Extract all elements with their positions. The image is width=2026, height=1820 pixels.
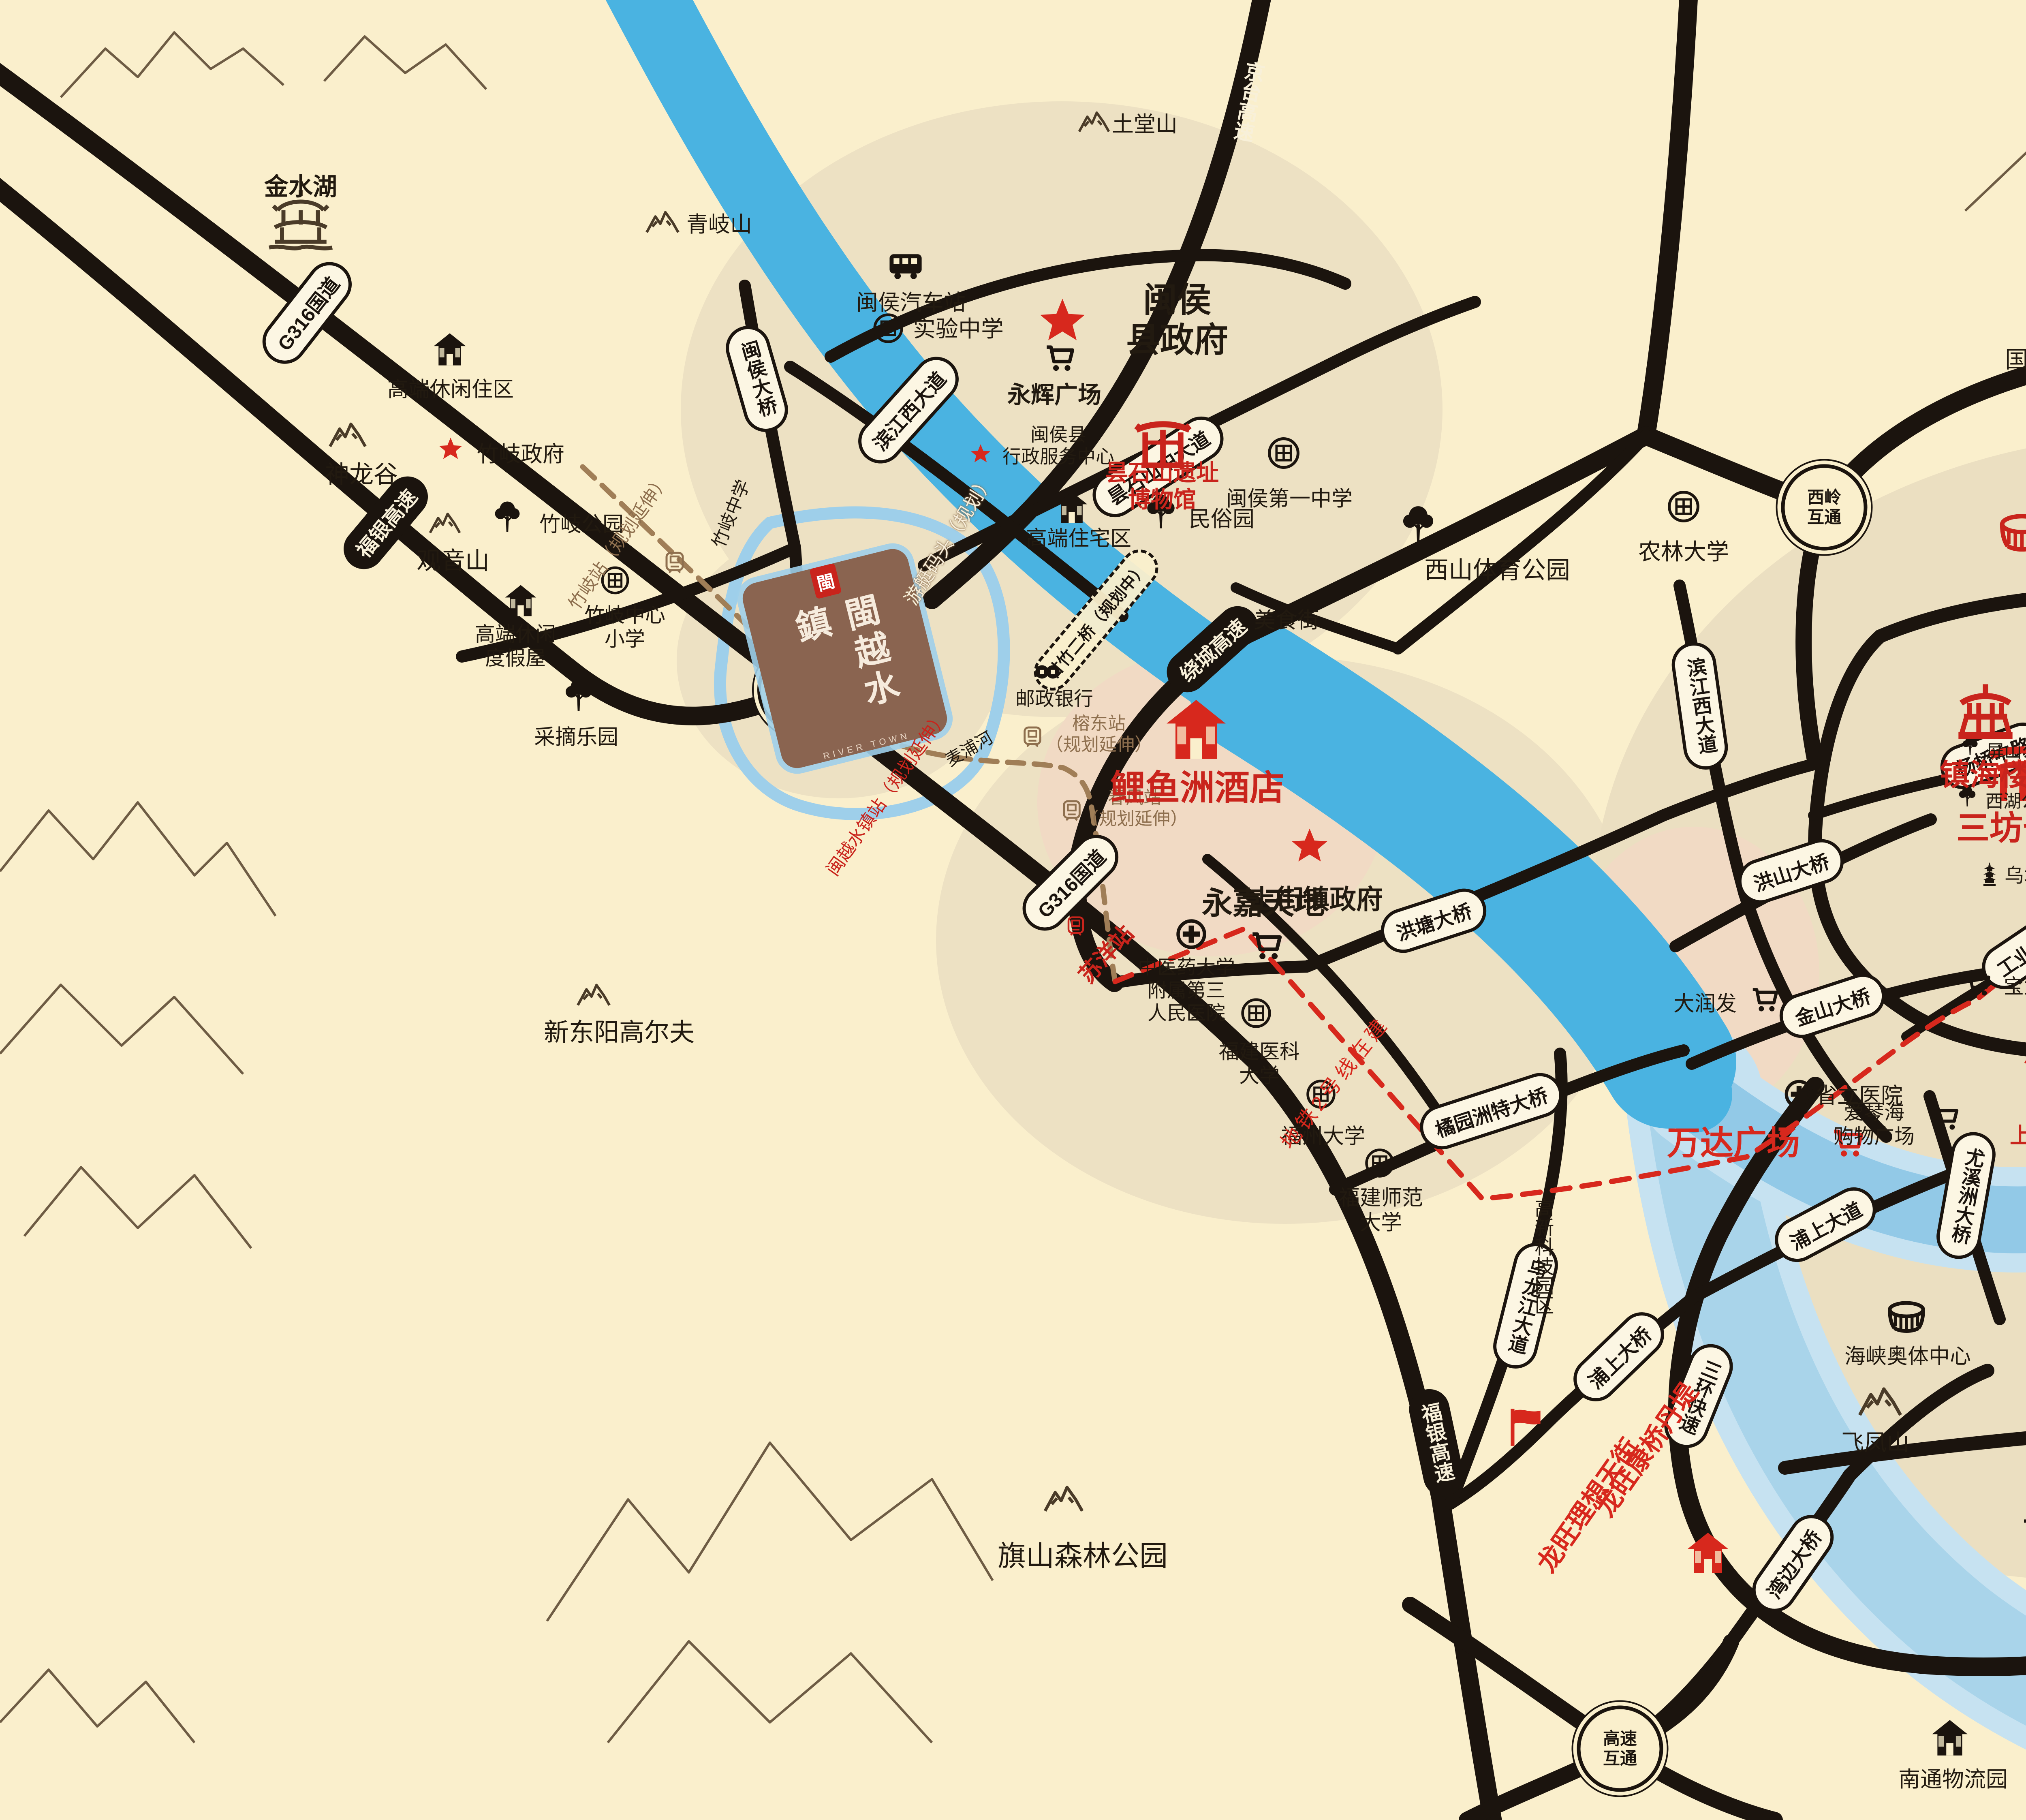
post-bank-label: 邮政银行 bbox=[1015, 688, 1093, 711]
xiling-hutong-interchange-line: 互通 bbox=[1807, 507, 1841, 527]
zhongyiyao-hospital-label-line: 附属第三 bbox=[1138, 980, 1235, 1003]
star-icon bbox=[1038, 297, 1087, 345]
house-icon bbox=[1053, 489, 1090, 526]
xiling-hutong-interchange-line: 西岭 bbox=[1807, 488, 1841, 507]
seal-icon bbox=[1667, 490, 1701, 524]
star-icon bbox=[970, 443, 991, 464]
zhuqi-primary-label-line: 竹岐中心 bbox=[584, 603, 665, 627]
xiling-hutong-interchange: 西岭互通 bbox=[1781, 464, 1868, 551]
pingshan-park-label: 屏山公园 bbox=[1986, 741, 2026, 762]
minhou-service-center-label: 闽侯县行政服务中心 bbox=[1002, 424, 1114, 468]
gaoxin-park-label: 高新科技园区 bbox=[1530, 1198, 1554, 1315]
dujiawu-label-line: 高端休闲 bbox=[475, 622, 556, 646]
fujian-medical-univ-label-line: 福建医科 bbox=[1219, 1040, 1300, 1064]
cart-icon bbox=[2020, 1516, 2026, 1548]
train-icon bbox=[1021, 725, 1044, 749]
house-icon bbox=[431, 330, 469, 369]
gaosu-hutong-interchange-line: 互通 bbox=[1603, 1749, 1637, 1768]
seal-icon bbox=[872, 312, 904, 344]
xindongyang-golf-label: 新东阳高尔夫 bbox=[544, 1018, 695, 1047]
minhou-gov-label: 闽侯县政府 bbox=[1126, 280, 1228, 360]
mtn-icon bbox=[429, 506, 461, 538]
mtn-icon bbox=[577, 977, 611, 1011]
gaoduan-xiuxian-zhuqu-label: 高端休闲住区 bbox=[387, 377, 514, 402]
gaosu-hutong-interchange: 高速互通 bbox=[1577, 1706, 1663, 1792]
train-icon bbox=[1060, 799, 1084, 822]
wuta-label: 乌塔 bbox=[2005, 865, 2026, 888]
tree-icon bbox=[560, 676, 598, 714]
tree-icon bbox=[1396, 503, 1440, 547]
aiqinhai-label-line: 购物广场 bbox=[1834, 1125, 1915, 1148]
shiyan-middle-label: 实验中学 bbox=[913, 316, 1004, 342]
tree-icon bbox=[489, 498, 526, 535]
minhou-gov-label-line: 县政府 bbox=[1126, 320, 1228, 360]
gaosu-hutong-interchange-line: 高速 bbox=[1603, 1729, 1637, 1749]
chunfeng-station-label-line: （规划延伸） bbox=[1081, 808, 1188, 830]
nantong-logistics-label: 南通物流园 bbox=[1898, 1767, 2008, 1793]
mtn-icon bbox=[645, 204, 680, 238]
zhuqi-primary-label: 竹岐中心小学 bbox=[584, 603, 665, 651]
xishan-sports-park-label: 西山体育公园 bbox=[1424, 556, 1570, 585]
cart-icon bbox=[1043, 342, 1077, 376]
shangxiahang-label-line: 上下杭历史 bbox=[2010, 1123, 2026, 1149]
train-icon bbox=[1065, 915, 1087, 937]
bank-icon bbox=[1033, 657, 1062, 687]
fujian-normal-univ-label: 福建师范大学 bbox=[1339, 1186, 1423, 1236]
zhongyiyao-hospital-label-line: 人民医院 bbox=[1138, 1002, 1235, 1025]
zhuqi-gov-label: 竹岐政府 bbox=[477, 442, 564, 468]
feifengshan-label: 飞凤山 bbox=[1841, 1429, 1909, 1456]
house-icon bbox=[1684, 1529, 1732, 1577]
star-icon bbox=[1291, 827, 1329, 866]
qishan-forest-park-label: 旗山森林公园 bbox=[998, 1540, 1168, 1573]
guanyinshan-label: 观音山 bbox=[417, 547, 489, 576]
zhuqi-park-label: 竹岐公园 bbox=[539, 512, 624, 537]
zhongyiyao-hospital-label: 中医药大学附属第三人民医院 bbox=[1138, 956, 1235, 1025]
mtn-icon bbox=[1043, 1477, 1084, 1518]
fujian-normal-univ-label-line: 福建师范 bbox=[1339, 1186, 1423, 1211]
house-icon bbox=[1161, 694, 1232, 765]
star-icon bbox=[438, 436, 463, 462]
gaoduan-zhuzhaiqu-label: 高端住宅区 bbox=[1026, 526, 1131, 551]
sanfangqixiang-label: 三坊七巷 bbox=[1956, 809, 2026, 849]
rongdong-station-label: 榕东站（规划延伸） bbox=[1045, 713, 1152, 755]
zhenhailou-label: 镇海楼 bbox=[1940, 757, 2026, 792]
zhongyiyao-hospital-label-line: 中医药大学 bbox=[1138, 956, 1235, 980]
train-icon bbox=[663, 550, 687, 575]
dujiawu-label-line: 度假屋 bbox=[475, 646, 556, 670]
cross-icon bbox=[1784, 1079, 1814, 1110]
tanshishan-museum-label-line: 昙石山遗址 bbox=[1105, 460, 1219, 486]
zhuqi-primary-label-line: 小学 bbox=[584, 627, 665, 651]
seal-icon bbox=[1267, 436, 1301, 471]
liyuzhou-hotel-label: 鲤鱼洲酒店 bbox=[1110, 768, 1284, 808]
rongdong-station-label-line: （规划延伸） bbox=[1045, 734, 1152, 755]
rongdong-station-label-line: 榕东站 bbox=[1045, 713, 1152, 734]
water-town-title: 閩越水鎮 bbox=[782, 589, 913, 747]
wanda-west-label: 万达广场 bbox=[1667, 1124, 1800, 1163]
dujiawu-label: 高端休闲度假屋 bbox=[475, 622, 556, 670]
fujian-medical-univ-label: 福建医科大学 bbox=[1219, 1040, 1300, 1088]
darunfa-label: 大润发 bbox=[1673, 992, 1737, 1016]
tanshishan-museum-label: 昙石山遗址博物馆 bbox=[1105, 460, 1219, 513]
fujian-normal-univ-label-line: 大学 bbox=[1339, 1211, 1423, 1236]
cart-icon bbox=[1248, 928, 1284, 965]
water-town-seal: 閩 bbox=[809, 563, 842, 599]
jinshuihu-label: 金水湖 bbox=[264, 173, 337, 202]
mtn-icon bbox=[1858, 1378, 1902, 1422]
minhou-bus-station-label: 闽侯汽车站 bbox=[856, 290, 966, 316]
tower-icon bbox=[1953, 679, 2018, 744]
cart-icon bbox=[1749, 984, 1780, 1016]
house-icon bbox=[502, 582, 539, 619]
nonglin-univ-label: 农林大学 bbox=[1638, 539, 1729, 565]
minhou-service-center-label-line: 闽侯县 bbox=[1002, 424, 1114, 446]
aoti-center-label: 海峡奥体中心 bbox=[1844, 1344, 1971, 1369]
fujian-medical-univ-label-line: 大学 bbox=[1219, 1064, 1300, 1088]
cart-icon bbox=[1962, 970, 1993, 1000]
yongjia-tiandi-label: 永嘉天地 bbox=[1202, 885, 1325, 922]
mtn-icon bbox=[1078, 105, 1110, 137]
shangxiahang-label-line: 文化区 bbox=[2010, 1149, 2026, 1175]
aiqinhai-label-line: 爱琴海 bbox=[1834, 1101, 1915, 1125]
meishijie-label: 美食街 bbox=[1254, 608, 1319, 634]
stadium-icon bbox=[1884, 1295, 1929, 1339]
seal-icon bbox=[1240, 997, 1272, 1029]
mtn-icon bbox=[329, 415, 367, 453]
minhou-gov-label-line: 闽侯 bbox=[1126, 280, 1228, 320]
national-forest-park-label: 国家森林公园 bbox=[2005, 346, 2026, 374]
tutangshan-label: 土堂山 bbox=[1112, 112, 1178, 138]
bus-icon bbox=[887, 246, 925, 285]
pagoda-icon bbox=[1976, 861, 2003, 888]
shenlonggu-label: 神龙谷 bbox=[325, 461, 398, 490]
cart-icon bbox=[1929, 1103, 1961, 1134]
shangxiahang-label: 上下杭历史文化区 bbox=[2010, 1123, 2026, 1174]
arch-icon bbox=[2021, 1045, 2026, 1112]
location-map: 閩 閩越水鎮 RIVER TOWN 区位图示意图 金水湖青岐山土堂山北峰山国家森… bbox=[0, 0, 2026, 1820]
baolong-plaza-label: 宝龙广场 bbox=[2004, 975, 2026, 999]
caizhai-leyuan-label: 采摘乐园 bbox=[534, 725, 618, 750]
cross-icon bbox=[1175, 918, 1207, 950]
stadium-icon bbox=[1996, 507, 2026, 559]
qingqishan-label: 青岐山 bbox=[686, 212, 752, 238]
minsuyuan-label: 民俗园 bbox=[1189, 507, 1254, 533]
seal-icon bbox=[1364, 1147, 1396, 1179]
flag-icon bbox=[1503, 1405, 1548, 1450]
minhou-service-center-label-line: 行政服务中心 bbox=[1002, 446, 1114, 468]
yonghui-plaza-label: 永辉广场 bbox=[1007, 381, 1101, 409]
aiqinhai-label: 爱琴海购物广场 bbox=[1834, 1101, 1915, 1148]
house-icon bbox=[1929, 1717, 1971, 1759]
